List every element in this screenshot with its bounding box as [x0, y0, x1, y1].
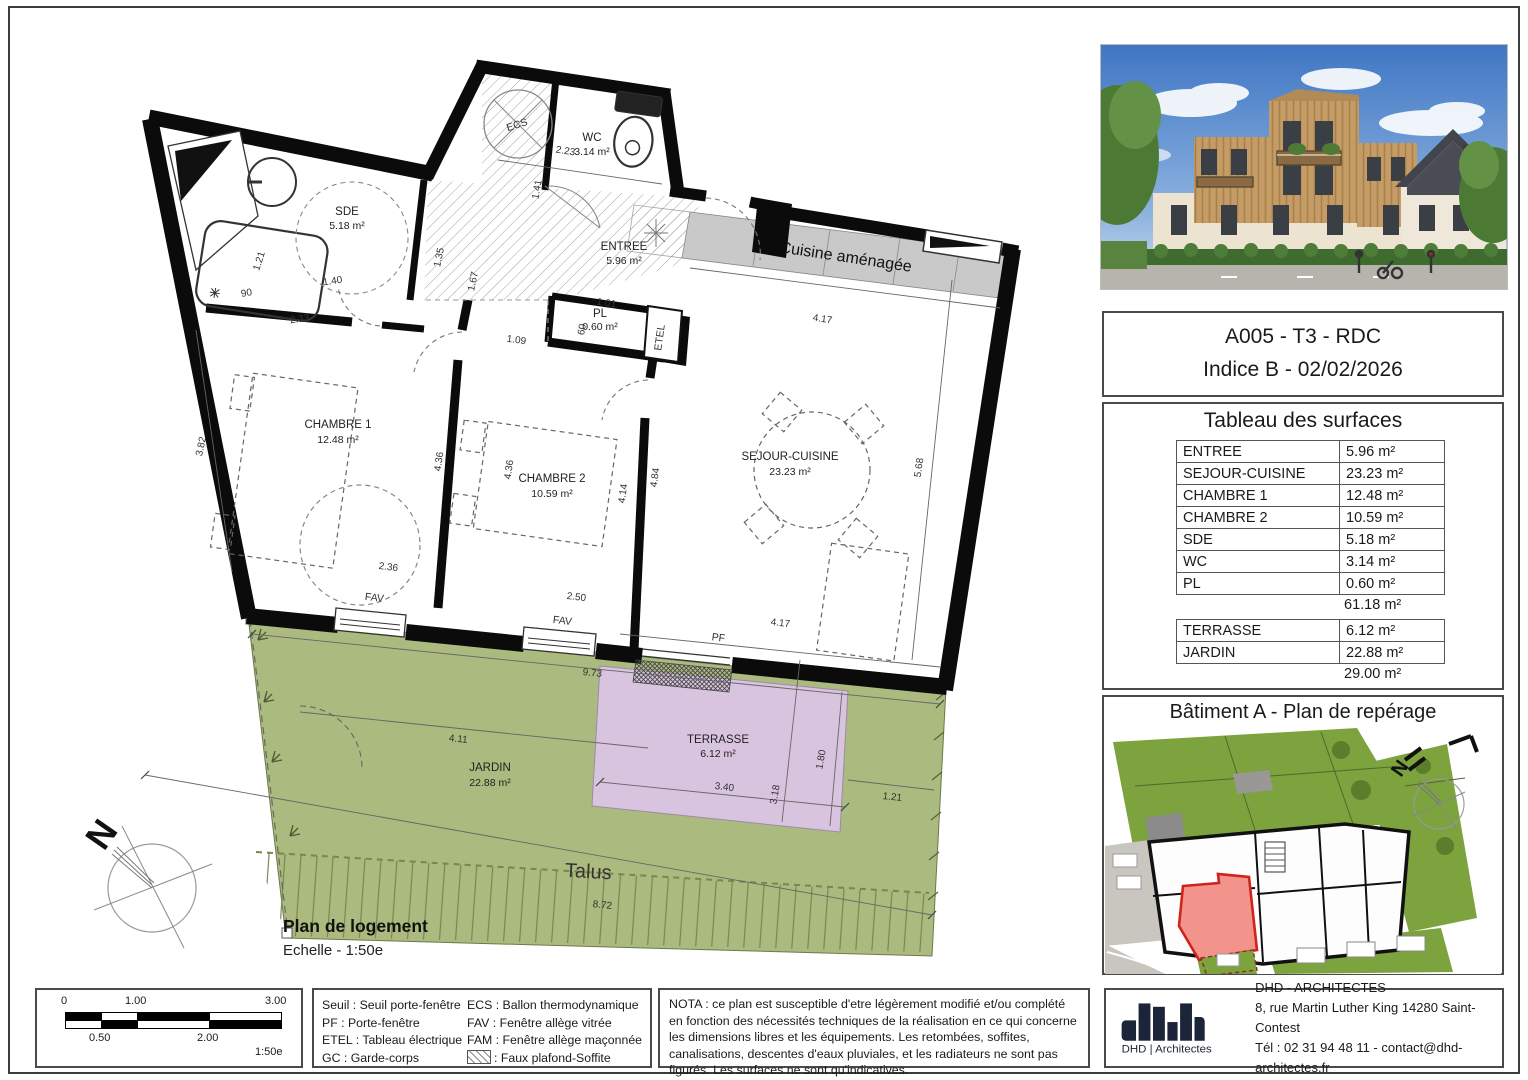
scale-tick: 0 [61, 995, 67, 1007]
svg-text:5.96 m²: 5.96 m² [606, 255, 642, 267]
legend-column-2: ECS : Ballon thermodynamique FAV : Fenêt… [467, 997, 642, 1059]
exterior-surface-table: TERRASSE6.12 m² JARDIN22.88 m² [1176, 619, 1445, 664]
svg-text:6.12 m²: 6.12 m² [700, 748, 736, 760]
svg-text:2.36: 2.36 [378, 561, 399, 574]
location-plan-map: N [1105, 726, 1501, 974]
dhd-logo-caption: DHD | Architectes [1122, 1044, 1212, 1056]
plan-revision: Indice B - 02/02/2026 [1104, 354, 1502, 387]
table-row: SEJOUR-CUISINE23.23 m² [1177, 463, 1445, 485]
firm-block: DHD | Architectes DHD - ARCHITECTES 8, r… [1104, 988, 1504, 1068]
surface-table: ENTREE5.96 m² SEJOUR-CUISINE23.23 m² CHA… [1176, 440, 1445, 595]
svg-text:PF: PF [711, 631, 726, 645]
svg-text:CHAMBRE 2: CHAMBRE 2 [518, 473, 585, 485]
table-row: SDE5.18 m² [1177, 529, 1445, 551]
location-plan-block: Bâtiment A - Plan de repérage [1102, 695, 1504, 975]
scale-tick: 0.50 [89, 1032, 110, 1044]
plan-sheet: Cuisine aménagée [0, 0, 1528, 1080]
location-plan-title: Bâtiment A - Plan de repérage [1104, 701, 1502, 724]
svg-text:4.14: 4.14 [617, 483, 631, 504]
svg-text:5.18 m²: 5.18 m² [329, 220, 365, 232]
svg-text:1.09: 1.09 [506, 334, 527, 348]
north-compass: N [77, 812, 212, 948]
svg-text:WC: WC [582, 132, 601, 144]
title-block: A005 - T3 - RDC Indice B - 02/02/2026 [1102, 311, 1504, 397]
table-row: JARDIN22.88 m² [1177, 642, 1445, 664]
svg-text:4.11: 4.11 [448, 733, 468, 746]
legend-item: FAM : Fenêtre allège maçonnée [467, 1032, 642, 1050]
scale-tick: 2.00 [197, 1032, 218, 1044]
table-row: CHAMBRE 210.59 m² [1177, 507, 1445, 529]
dhd-logo: DHD | Architectes [1114, 995, 1241, 1061]
legend-item: Seuil : Seuil porte-fenêtre [322, 997, 467, 1015]
svg-text:4.36: 4.36 [433, 451, 447, 472]
svg-text:SEJOUR-CUISINE: SEJOUR-CUISINE [741, 451, 838, 463]
north-letter: N [77, 812, 125, 857]
svg-text:90: 90 [240, 287, 253, 300]
table-row: PL0.60 m² [1177, 573, 1445, 595]
svg-text:5.68: 5.68 [913, 457, 927, 478]
scale-ratio: 1:50e [255, 1046, 283, 1058]
nota-text: NOTA : ce plan est susceptible d'etre lé… [669, 997, 1077, 1077]
table-row: ENTREE5.96 m² [1177, 441, 1445, 463]
legend-column-1: Seuil : Seuil porte-fenêtre PF : Porte-f… [322, 997, 467, 1059]
svg-text:10.59 m²: 10.59 m² [531, 488, 573, 500]
floor-plan-drawing: Cuisine aménagée [0, 0, 1090, 980]
svg-text:2.23: 2.23 [555, 145, 576, 159]
table-row: WC3.14 m² [1177, 551, 1445, 573]
svg-text:1.21: 1.21 [251, 250, 268, 272]
nota-block: NOTA : ce plan est susceptible d'etre lé… [658, 988, 1090, 1068]
svg-text:ENTREE: ENTREE [601, 241, 648, 253]
table-row: CHAMBRE 112.48 m² [1177, 485, 1445, 507]
scale-tick: 3.00 [265, 995, 286, 1007]
scale-bar-block: 0 1.00 3.00 0.50 2.00 1:50e [35, 988, 303, 1068]
surface-subtotal: 61.18 m² [1344, 597, 1502, 617]
entry-pillar [752, 198, 792, 258]
svg-text:2.33: 2.33 [289, 313, 310, 327]
svg-text:9.73: 9.73 [582, 667, 603, 680]
firm-address: 8, rue Martin Luther King 14280 Saint-Co… [1255, 998, 1494, 1038]
svg-text:PL: PL [593, 308, 608, 320]
hatch-icon [467, 1050, 491, 1064]
svg-text:1.40: 1.40 [322, 275, 343, 289]
svg-text:CHAMBRE 1: CHAMBRE 1 [304, 419, 371, 431]
surface-table-block: Tableau des surfaces ENTREE5.96 m² SEJOU… [1102, 402, 1504, 690]
legend-item: GC : Garde-corps [322, 1050, 467, 1068]
svg-text:FAV: FAV [552, 614, 572, 628]
legend-item: ETEL : Tableau électrique [322, 1032, 467, 1050]
svg-text:2.50: 2.50 [566, 591, 587, 604]
svg-text:Plan de logement: Plan de logement [283, 916, 428, 936]
building-render-photo [1100, 44, 1508, 290]
etel-box: ETEL [644, 306, 682, 362]
svg-text:TERRASSE: TERRASSE [687, 734, 749, 746]
legend-block: Seuil : Seuil porte-fenêtre PF : Porte-f… [312, 988, 652, 1068]
svg-text:3.14 m²: 3.14 m² [574, 146, 610, 158]
firm-contact: Tél : 02 31 94 48 11 - contact@dhd-archi… [1255, 1038, 1494, 1078]
legend-item: FAV : Fenêtre allège vitrée [467, 1015, 642, 1033]
svg-text:SDE: SDE [335, 206, 359, 218]
exterior-surface-total: 29.00 m² [1344, 666, 1502, 686]
surface-table-title: Tableau des surfaces [1104, 409, 1502, 433]
svg-text:4.84: 4.84 [649, 467, 663, 488]
talus-label: Talus [564, 860, 612, 884]
svg-text:1.21: 1.21 [882, 791, 903, 804]
legend-item: PF : Porte-fenêtre [322, 1015, 467, 1033]
svg-text:8.72: 8.72 [592, 899, 613, 912]
table-row: TERRASSE6.12 m² [1177, 620, 1445, 642]
firm-name: DHD - ARCHITECTES [1255, 978, 1494, 998]
plan-reference: A005 - T3 - RDC [1104, 321, 1502, 354]
legend-item: : Faux plafond-Soffite [467, 1050, 642, 1068]
firm-details: DHD - ARCHITECTES 8, rue Martin Luther K… [1255, 978, 1494, 1079]
svg-text:12.48 m²: 12.48 m² [317, 434, 359, 446]
svg-text:22.88 m²: 22.88 m² [469, 777, 511, 789]
svg-text:4.17: 4.17 [812, 313, 833, 327]
svg-text:4.36: 4.36 [503, 459, 517, 480]
legend-item: ECS : Ballon thermodynamique [467, 997, 642, 1015]
scale-tick: 1.00 [125, 995, 146, 1007]
svg-text:4.17: 4.17 [770, 617, 791, 630]
svg-text:JARDIN: JARDIN [469, 762, 511, 774]
svg-text:Echelle - 1:50e: Echelle - 1:50e [283, 942, 383, 959]
svg-text:3.82: 3.82 [194, 435, 209, 457]
svg-text:FAV: FAV [364, 591, 384, 605]
svg-text:23.23 m²: 23.23 m² [769, 466, 811, 478]
svg-text:0.60 m²: 0.60 m² [582, 321, 618, 333]
